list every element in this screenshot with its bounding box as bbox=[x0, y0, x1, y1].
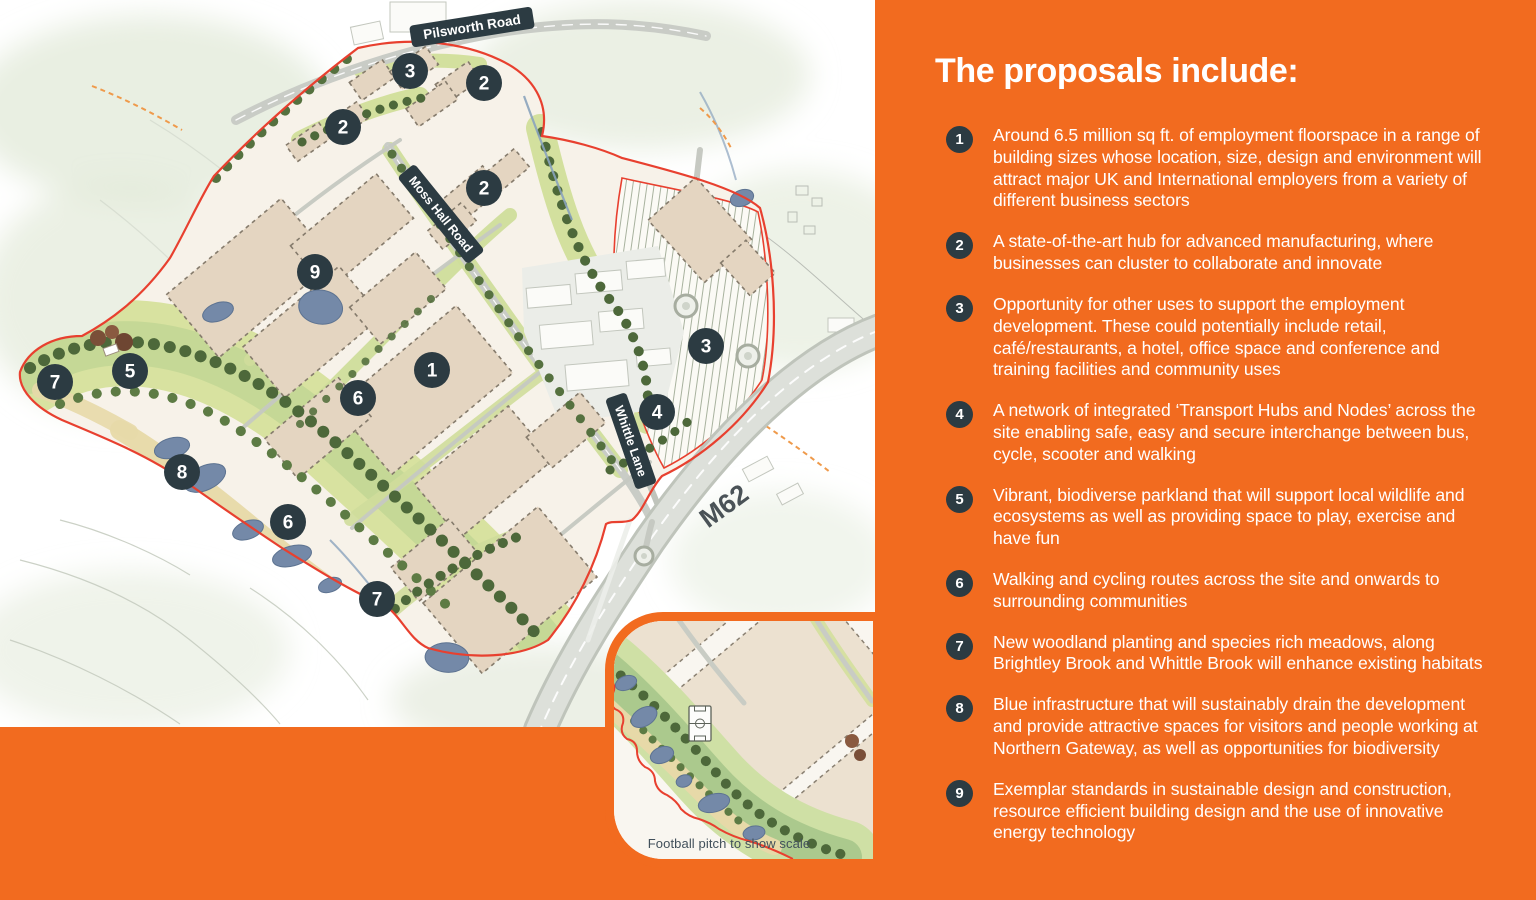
scale-inset: Football pitch to show scale bbox=[605, 612, 882, 868]
item-number-badge: 6 bbox=[946, 570, 973, 597]
svg-text:5: 5 bbox=[125, 362, 136, 383]
item-number-badge: 8 bbox=[946, 695, 973, 722]
proposal-list: 1Around 6.5 million sq ft. of employment… bbox=[935, 125, 1490, 844]
item-text: Opportunity for other uses to support th… bbox=[993, 294, 1490, 381]
item-number-badge: 4 bbox=[946, 401, 973, 428]
item-text: A network of integrated ‘Transport Hubs … bbox=[993, 400, 1490, 465]
proposal-item-2: 2A state-of-the-art hub for advanced man… bbox=[946, 231, 1490, 275]
item-text: Exemplar standards in sustainable design… bbox=[993, 779, 1490, 844]
map-marker-7: 7 bbox=[37, 364, 73, 400]
map-marker-7: 7 bbox=[359, 581, 395, 617]
svg-text:1: 1 bbox=[427, 361, 438, 382]
svg-text:2: 2 bbox=[479, 74, 490, 95]
map-marker-2: 2 bbox=[466, 65, 502, 101]
svg-text:2: 2 bbox=[479, 179, 490, 200]
item-text: New woodland planting and species rich m… bbox=[993, 632, 1490, 676]
proposal-item-6: 6Walking and cycling routes across the s… bbox=[946, 569, 1490, 613]
svg-text:6: 6 bbox=[283, 513, 294, 534]
svg-text:2: 2 bbox=[338, 118, 349, 139]
map-marker-1: 1 bbox=[414, 352, 450, 388]
inset-caption: Football pitch to show scale bbox=[614, 836, 844, 851]
svg-text:3: 3 bbox=[701, 337, 712, 358]
map-marker-6: 6 bbox=[270, 504, 306, 540]
map-marker-5: 5 bbox=[112, 353, 148, 389]
svg-text:9: 9 bbox=[310, 263, 321, 284]
map-marker-3: 3 bbox=[688, 328, 724, 364]
proposal-item-7: 7New woodland planting and species rich … bbox=[946, 632, 1490, 676]
item-number-badge: 9 bbox=[946, 780, 973, 807]
proposal-item-5: 5Vibrant, biodiverse parkland that will … bbox=[946, 485, 1490, 550]
proposal-item-1: 1Around 6.5 million sq ft. of employment… bbox=[946, 125, 1490, 212]
item-text: Around 6.5 million sq ft. of employment … bbox=[993, 125, 1490, 212]
proposal-item-3: 3Opportunity for other uses to support t… bbox=[946, 294, 1490, 381]
item-number-badge: 7 bbox=[946, 633, 973, 660]
panel-title: The proposals include: bbox=[935, 52, 1490, 91]
svg-text:8: 8 bbox=[177, 463, 188, 484]
map-marker-6: 6 bbox=[340, 380, 376, 416]
football-pitch-icon bbox=[689, 706, 711, 741]
svg-text:3: 3 bbox=[405, 62, 416, 83]
item-number-badge: 5 bbox=[946, 486, 973, 513]
item-number-badge: 1 bbox=[946, 126, 973, 153]
map-marker-9: 9 bbox=[297, 254, 333, 290]
inset-map bbox=[614, 621, 873, 859]
map-marker-4: 4 bbox=[639, 394, 675, 430]
svg-text:4: 4 bbox=[652, 403, 663, 424]
masterplan-map: Pilsworth RoadMoss Hall RoadWhittle Lane… bbox=[0, 0, 882, 900]
item-text: Walking and cycling routes across the si… bbox=[993, 569, 1490, 613]
page: Pilsworth RoadMoss Hall RoadWhittle Lane… bbox=[0, 0, 1536, 900]
item-text: Vibrant, biodiverse parkland that will s… bbox=[993, 485, 1490, 550]
proposal-item-8: 8Blue infrastructure that will sustainab… bbox=[946, 694, 1490, 759]
svg-text:7: 7 bbox=[372, 590, 383, 611]
proposals-panel: The proposals include: 1Around 6.5 milli… bbox=[875, 0, 1536, 900]
item-text: Blue infrastructure that will sustainabl… bbox=[993, 694, 1490, 759]
proposal-item-9: 9Exemplar standards in sustainable desig… bbox=[946, 779, 1490, 844]
svg-text:7: 7 bbox=[50, 373, 61, 394]
item-number-badge: 3 bbox=[946, 295, 973, 322]
map-marker-3: 3 bbox=[392, 53, 428, 89]
map-marker-2: 2 bbox=[466, 170, 502, 206]
svg-text:6: 6 bbox=[353, 389, 364, 410]
item-number-badge: 2 bbox=[946, 232, 973, 259]
map-marker-8: 8 bbox=[164, 454, 200, 490]
proposal-item-4: 4A network of integrated ‘Transport Hubs… bbox=[946, 400, 1490, 465]
map-marker-2: 2 bbox=[325, 109, 361, 145]
item-text: A state-of-the-art hub for advanced manu… bbox=[993, 231, 1490, 275]
